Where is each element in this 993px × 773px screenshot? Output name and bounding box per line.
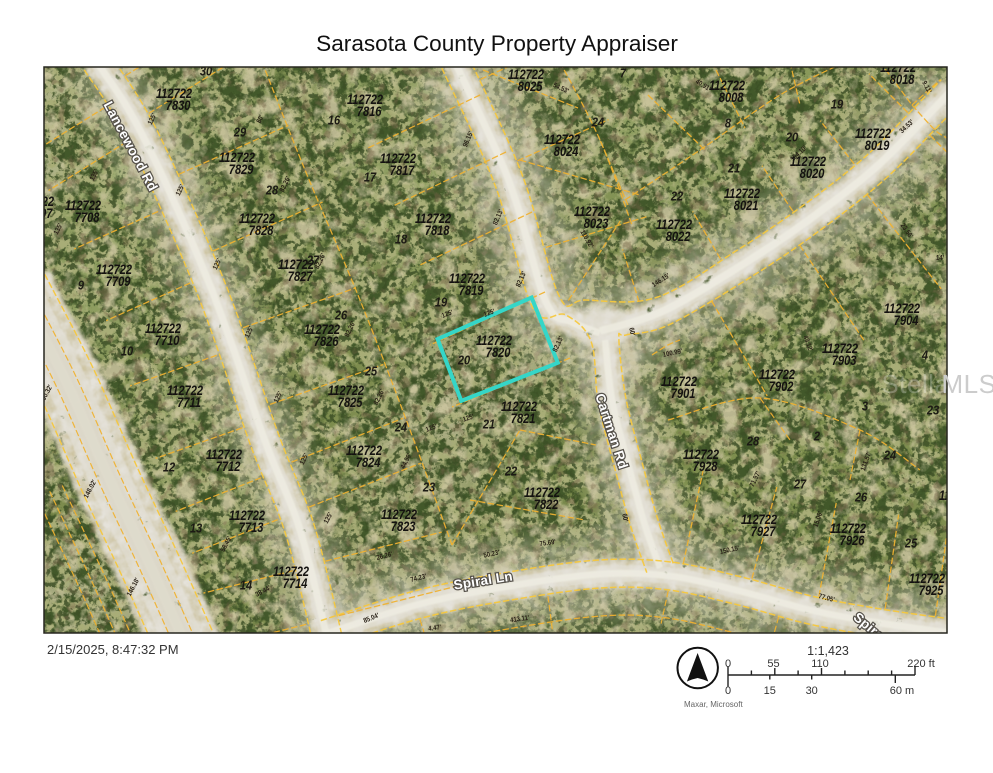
svg-text:7901: 7901 (671, 386, 696, 401)
svg-text:4: 4 (921, 348, 928, 363)
svg-text:7714: 7714 (283, 576, 308, 591)
svg-text:22: 22 (670, 189, 683, 204)
svg-text:8: 8 (725, 116, 731, 131)
svg-text:7818: 7818 (425, 223, 450, 238)
svg-text:1:1,423: 1:1,423 (807, 644, 849, 658)
svg-text:2: 2 (813, 429, 820, 444)
svg-text:14: 14 (240, 578, 253, 593)
svg-text:7820: 7820 (486, 345, 511, 360)
svg-text:7829: 7829 (229, 162, 254, 177)
svg-text:7826: 7826 (314, 334, 339, 349)
svg-text:7710: 7710 (155, 333, 180, 348)
svg-text:9: 9 (78, 278, 84, 293)
svg-text:19: 19 (435, 295, 448, 310)
svg-text:24: 24 (394, 420, 407, 435)
svg-text:8020: 8020 (800, 166, 825, 181)
svg-text:7828: 7828 (249, 223, 274, 238)
svg-text:2/15/2025, 8:47:32 PM: 2/15/2025, 8:47:32 PM (47, 642, 179, 657)
svg-text:220 ft: 220 ft (907, 658, 935, 670)
svg-text:10: 10 (121, 344, 134, 359)
svg-text:7823: 7823 (391, 519, 416, 534)
svg-text:8021: 8021 (734, 198, 759, 213)
svg-text:7708: 7708 (75, 210, 100, 225)
svg-text:16: 16 (328, 113, 341, 128)
svg-text:7928: 7928 (693, 459, 718, 474)
svg-text:Sarasota County Property Appra: Sarasota County Property Appraiser (316, 31, 678, 56)
svg-text:8008: 8008 (719, 90, 744, 105)
svg-text:7821: 7821 (511, 411, 536, 426)
svg-text:23: 23 (422, 480, 435, 495)
svg-text:7711: 7711 (177, 395, 201, 410)
svg-text:7927: 7927 (751, 524, 777, 539)
svg-text:27: 27 (793, 477, 807, 492)
svg-text:Maxar, Microsoft: Maxar, Microsoft (684, 700, 743, 709)
svg-text:8019: 8019 (865, 138, 890, 153)
svg-text:7824: 7824 (356, 455, 381, 470)
svg-text:7819: 7819 (459, 283, 484, 298)
svg-text:23: 23 (926, 403, 939, 418)
svg-text:MLS: MLS (942, 369, 993, 399)
svg-text:7904: 7904 (894, 313, 919, 328)
svg-text:7713: 7713 (239, 520, 264, 535)
svg-text:24: 24 (883, 448, 896, 463)
svg-text:7825: 7825 (338, 395, 363, 410)
svg-text:7822: 7822 (534, 497, 559, 512)
svg-text:14': 14' (936, 255, 944, 263)
svg-text:15: 15 (764, 685, 776, 697)
svg-text:7712: 7712 (216, 459, 241, 474)
svg-text:7827: 7827 (288, 269, 314, 284)
svg-text:7830: 7830 (166, 98, 191, 113)
svg-text:28: 28 (746, 434, 759, 449)
svg-text:25: 25 (364, 364, 377, 379)
svg-text:27: 27 (306, 253, 320, 268)
svg-text:7925: 7925 (919, 583, 944, 598)
svg-text:21: 21 (482, 417, 495, 432)
svg-text:17: 17 (364, 170, 377, 185)
svg-text:8025: 8025 (518, 79, 543, 94)
svg-text:60 m: 60 m (890, 685, 914, 697)
svg-text:13: 13 (190, 521, 203, 536)
svg-text:12: 12 (163, 460, 176, 475)
svg-text:8023: 8023 (584, 216, 609, 231)
svg-text:7926: 7926 (840, 533, 865, 548)
svg-text:8018: 8018 (890, 72, 915, 87)
svg-text:29: 29 (233, 125, 246, 140)
svg-text:24: 24 (591, 115, 604, 130)
svg-text:8024: 8024 (554, 144, 579, 159)
svg-text:26: 26 (854, 490, 867, 505)
svg-text:7709: 7709 (106, 274, 131, 289)
svg-text:0: 0 (725, 685, 731, 697)
svg-text:8022: 8022 (666, 229, 691, 244)
svg-text:22: 22 (504, 464, 517, 479)
svg-text:110: 110 (811, 658, 829, 670)
svg-text:3: 3 (862, 399, 868, 414)
svg-text:25: 25 (904, 536, 917, 551)
svg-text:18: 18 (395, 232, 408, 247)
svg-text:20: 20 (457, 353, 470, 368)
svg-text:28: 28 (265, 183, 278, 198)
svg-text:30: 30 (806, 685, 818, 697)
svg-text:7903: 7903 (832, 353, 857, 368)
svg-text:19: 19 (831, 97, 844, 112)
svg-text:55: 55 (767, 658, 779, 670)
svg-text:21: 21 (727, 161, 740, 176)
svg-text:26: 26 (334, 308, 347, 323)
svg-text:7817: 7817 (390, 163, 416, 178)
svg-text:20: 20 (785, 130, 798, 145)
svg-text:7902: 7902 (769, 379, 794, 394)
svg-text:7816: 7816 (357, 104, 382, 119)
